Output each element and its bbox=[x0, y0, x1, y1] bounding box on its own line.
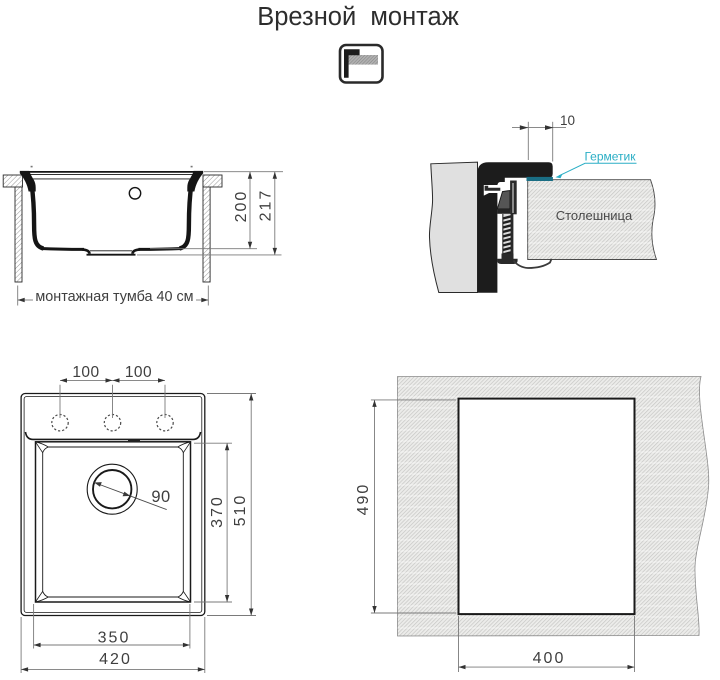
svg-text:Врезной монтаж: Врезной монтаж bbox=[257, 3, 459, 31]
svg-text:217: 217 bbox=[258, 189, 275, 222]
svg-text:490: 490 bbox=[355, 483, 372, 516]
svg-text:370: 370 bbox=[209, 495, 226, 528]
svg-text:монтажная тумба 40 см: монтажная тумба 40 см bbox=[35, 289, 193, 305]
svg-text:Столешница: Столешница bbox=[556, 208, 633, 223]
svg-text:420: 420 bbox=[99, 651, 132, 668]
svg-text:90: 90 bbox=[151, 488, 170, 506]
svg-text:200: 200 bbox=[233, 190, 250, 223]
svg-text:400: 400 bbox=[533, 650, 566, 667]
svg-text:100: 100 bbox=[125, 364, 152, 381]
svg-text:Герметик: Герметик bbox=[584, 150, 636, 164]
svg-text:10: 10 bbox=[560, 113, 575, 128]
svg-text:100: 100 bbox=[72, 364, 99, 381]
svg-text:510: 510 bbox=[232, 494, 249, 527]
svg-text:350: 350 bbox=[98, 630, 131, 647]
